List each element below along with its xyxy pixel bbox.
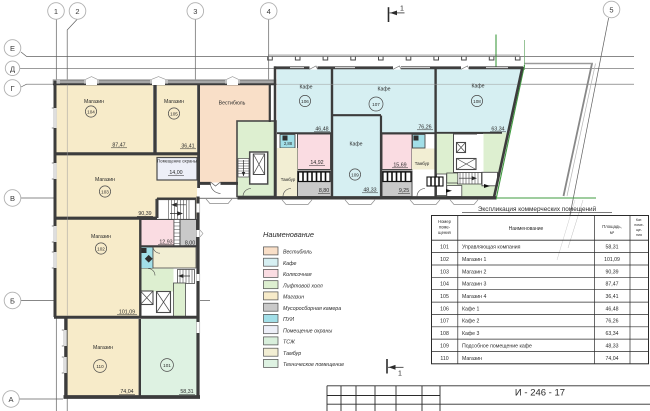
svg-text:Кафе 2: Кафе 2 — [462, 319, 480, 325]
svg-text:106: 106 — [301, 99, 309, 104]
svg-text:Д: Д — [10, 64, 15, 73]
svg-text:108: 108 — [440, 331, 449, 337]
svg-text:Е: Е — [10, 44, 15, 53]
svg-text:поме-: поме- — [439, 225, 451, 230]
svg-text:Наименование: Наименование — [263, 230, 314, 239]
svg-text:Г: Г — [10, 84, 14, 93]
svg-text:поме-: поме- — [634, 223, 644, 227]
svg-text:Экспликация коммерческих помещ: Экспликация коммерческих помещений — [478, 205, 597, 213]
svg-text:48,33: 48,33 — [606, 344, 619, 350]
svg-text:2,88: 2,88 — [284, 141, 293, 146]
svg-text:109: 109 — [351, 173, 359, 178]
svg-text:1: 1 — [398, 371, 402, 378]
svg-text:Магазин: Магазин — [164, 99, 184, 105]
svg-text:104: 104 — [87, 110, 95, 115]
svg-text:ния: ния — [636, 233, 642, 237]
svg-text:110: 110 — [96, 364, 104, 369]
svg-text:3: 3 — [193, 7, 197, 16]
svg-text:Техническое помещение: Техническое помещение — [283, 362, 344, 368]
svg-text:В: В — [10, 194, 15, 203]
svg-text:Магазин 2: Магазин 2 — [462, 269, 486, 275]
svg-text:м²: м² — [610, 230, 615, 235]
svg-text:Магазин 4: Магазин 4 — [462, 294, 486, 300]
svg-text:Кафе: Кафе — [349, 142, 362, 148]
svg-text:Кафе 3: Кафе 3 — [462, 331, 480, 337]
svg-text:1: 1 — [54, 7, 58, 16]
svg-text:Кафе: Кафе — [471, 84, 484, 90]
svg-text:Магазин: Магазин — [462, 356, 482, 362]
svg-text:103: 103 — [440, 269, 449, 275]
svg-text:Мусоросборная камера: Мусоросборная камера — [283, 306, 341, 312]
svg-text:ПУИ: ПУИ — [283, 317, 294, 323]
svg-text:Помещение охраны: Помещение охраны — [283, 328, 332, 334]
svg-text:76,26: 76,26 — [606, 319, 619, 325]
svg-text:щения: щения — [438, 230, 451, 235]
svg-text:Магазин: Магазин — [91, 234, 111, 240]
svg-text:101,09: 101,09 — [604, 257, 620, 263]
svg-text:107: 107 — [440, 319, 449, 325]
svg-text:Магазин: Магазин — [84, 99, 104, 105]
svg-text:ТСЖ: ТСЖ — [283, 340, 296, 346]
svg-text:110: 110 — [440, 356, 448, 362]
svg-text:Наименование: Наименование — [509, 226, 544, 232]
svg-text:63,34: 63,34 — [606, 331, 619, 337]
svg-text:Кафе: Кафе — [299, 85, 312, 91]
svg-text:Магазин: Магазин — [95, 177, 115, 183]
svg-text:Магазин: Магазин — [93, 345, 113, 351]
svg-text:Магазин 3: Магазин 3 — [462, 282, 486, 288]
svg-text:Тамбур: Тамбур — [281, 177, 296, 182]
svg-text:36,41: 36,41 — [606, 294, 619, 300]
svg-text:5: 5 — [609, 6, 613, 15]
svg-text:4: 4 — [267, 7, 271, 16]
svg-text:46,48: 46,48 — [606, 306, 619, 312]
svg-text:Лифтовой холл: Лифтовой холл — [282, 282, 323, 289]
svg-text:58,31: 58,31 — [606, 245, 619, 251]
svg-text:74,04: 74,04 — [606, 356, 619, 362]
svg-text:101: 101 — [440, 245, 449, 251]
svg-text:Тамбур: Тамбур — [283, 351, 301, 357]
svg-text:Кафе: Кафе — [283, 261, 297, 267]
svg-text:А: А — [8, 395, 13, 404]
svg-text:Кафе 1: Кафе 1 — [462, 306, 480, 312]
svg-text:Кафе: Кафе — [377, 87, 390, 93]
svg-text:2: 2 — [75, 7, 79, 16]
svg-text:90,39: 90,39 — [606, 269, 619, 275]
svg-text:Б: Б — [10, 297, 15, 306]
svg-text:Помещение охраны: Помещение охраны — [157, 159, 197, 164]
svg-text:Номер: Номер — [438, 219, 452, 224]
svg-text:106: 106 — [440, 306, 449, 312]
svg-text:105: 105 — [170, 112, 178, 117]
svg-text:107: 107 — [372, 102, 380, 107]
svg-text:Подсобное помещение кафе: Подсобное помещение кафе — [462, 344, 532, 350]
svg-text:И - 246 - 17: И - 246 - 17 — [515, 388, 565, 399]
svg-text:105: 105 — [440, 294, 449, 300]
svg-text:102: 102 — [440, 257, 449, 263]
svg-text:Магазин: Магазин — [283, 295, 304, 301]
svg-text:Колясочная: Колясочная — [283, 272, 312, 278]
svg-text:102: 102 — [97, 247, 105, 252]
svg-text:Тамбур: Тамбур — [415, 161, 430, 166]
svg-text:1: 1 — [400, 6, 404, 13]
svg-text:Площадь,: Площадь, — [602, 224, 621, 229]
svg-text:ще-: ще- — [636, 228, 643, 232]
svg-text:108: 108 — [473, 99, 481, 104]
svg-text:Вестибюль: Вестибюль — [283, 250, 312, 256]
svg-text:103: 103 — [101, 190, 109, 195]
svg-text:109: 109 — [440, 344, 449, 350]
svg-text:Магазин 1: Магазин 1 — [462, 257, 486, 263]
svg-text:101: 101 — [163, 363, 171, 368]
svg-text:Кат.: Кат. — [636, 218, 642, 222]
svg-text:Управляющая компания: Управляющая компания — [462, 245, 521, 251]
svg-text:Вестибюль: Вестибюль — [219, 101, 246, 107]
svg-text:87,47: 87,47 — [606, 282, 619, 288]
svg-text:104: 104 — [440, 282, 449, 288]
